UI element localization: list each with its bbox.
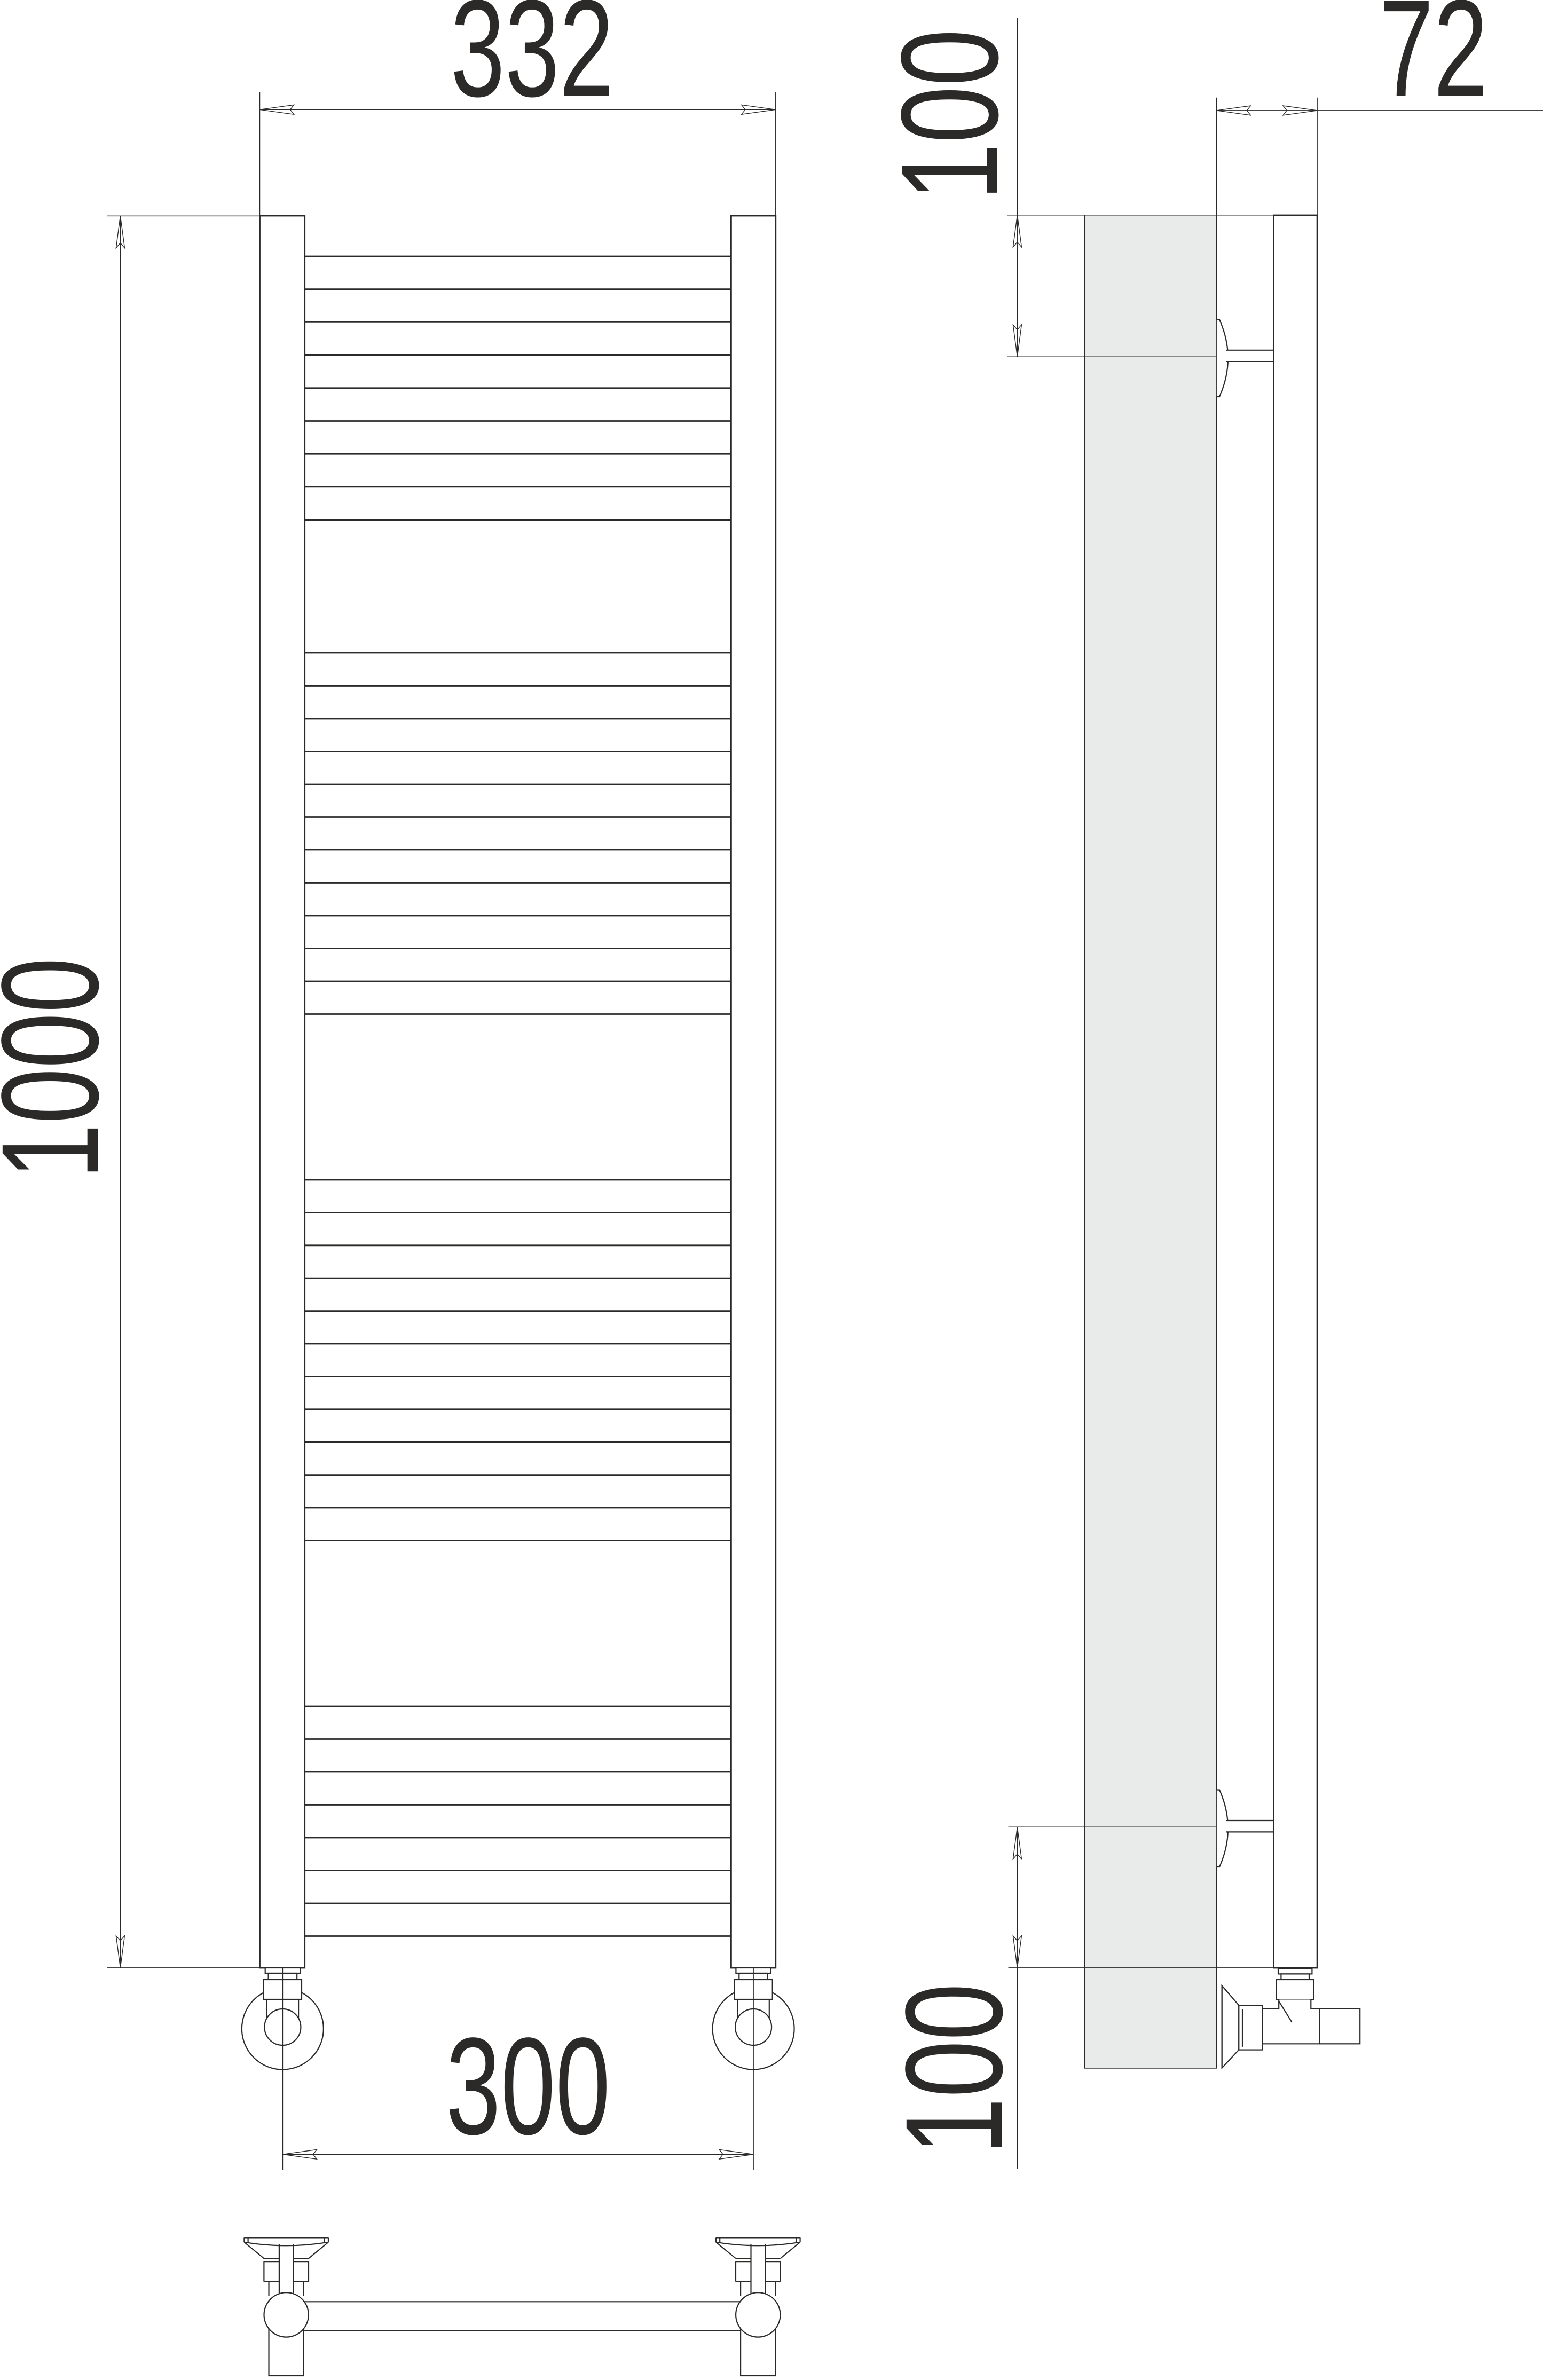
svg-text:100: 100 xyxy=(877,1983,1031,2155)
svg-text:332: 332 xyxy=(451,0,614,125)
svg-text:72: 72 xyxy=(1379,0,1488,125)
svg-text:100: 100 xyxy=(872,29,1027,201)
svg-text:300: 300 xyxy=(446,2009,610,2163)
svg-text:1000: 1000 xyxy=(0,958,127,1179)
